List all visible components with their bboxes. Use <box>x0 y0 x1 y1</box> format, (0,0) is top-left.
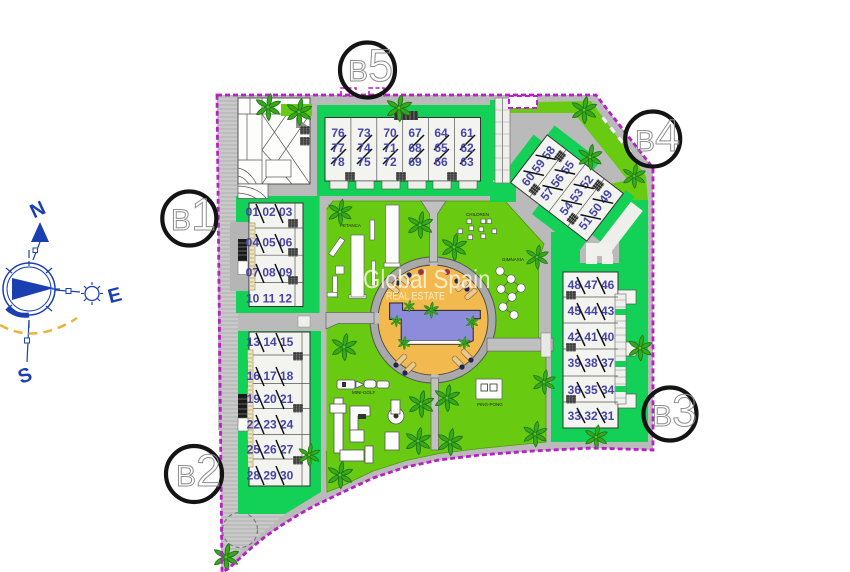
svg-text:76: 76 <box>331 126 345 140</box>
svg-text:63: 63 <box>460 155 474 169</box>
svg-text:62: 62 <box>460 141 474 155</box>
svg-text:61: 61 <box>460 126 474 140</box>
svg-text:74: 74 <box>357 141 371 155</box>
svg-text:S: S <box>15 363 35 388</box>
svg-text:48 47 46: 48 47 46 <box>568 278 615 292</box>
svg-text:28 29 30: 28 29 30 <box>247 469 294 483</box>
svg-text:B1: B1 <box>171 189 216 240</box>
svg-text:07 08 09: 07 08 09 <box>246 265 293 279</box>
svg-text:66: 66 <box>434 155 448 169</box>
svg-text:39 38 37: 39 38 37 <box>568 356 615 370</box>
svg-text:73: 73 <box>357 126 371 140</box>
svg-text:25 26 27: 25 26 27 <box>247 443 294 457</box>
svg-text:B3: B3 <box>652 385 697 436</box>
svg-text:33 32 31: 33 32 31 <box>568 409 615 423</box>
svg-text:72: 72 <box>383 155 397 169</box>
svg-text:77: 77 <box>331 141 345 155</box>
svg-text:MINI-GOLF: MINI-GOLF <box>352 390 376 395</box>
svg-text:B2: B2 <box>176 445 221 496</box>
svg-text:42 41 40: 42 41 40 <box>568 330 615 344</box>
svg-text:PETANCA: PETANCA <box>340 223 361 228</box>
svg-text:22 23 24: 22 23 24 <box>247 418 294 432</box>
svg-text:78: 78 <box>331 155 345 169</box>
svg-text:16 17 18: 16 17 18 <box>247 369 294 383</box>
svg-text:71: 71 <box>383 141 397 155</box>
svg-text:45 44 43: 45 44 43 <box>568 304 615 318</box>
svg-text:70: 70 <box>383 126 397 140</box>
svg-text:68: 68 <box>408 141 422 155</box>
svg-text:10 11 12: 10 11 12 <box>246 291 292 305</box>
svg-text:01 02 03: 01 02 03 <box>246 205 293 219</box>
svg-text:75: 75 <box>357 155 371 169</box>
svg-text:REAL ESTATE: REAL ESTATE <box>386 291 445 303</box>
svg-text:65: 65 <box>434 141 448 155</box>
svg-text:19 20 21: 19 20 21 <box>247 392 294 406</box>
svg-text:04 05 06: 04 05 06 <box>246 236 293 250</box>
svg-text:64: 64 <box>434 126 448 140</box>
svg-text:N: N <box>27 197 49 223</box>
svg-text:Global Spain: Global Spain <box>363 264 491 294</box>
svg-text:E: E <box>106 283 125 308</box>
svg-text:B4: B4 <box>635 110 680 161</box>
svg-text:36 35 34: 36 35 34 <box>568 383 615 397</box>
svg-text:69: 69 <box>408 155 422 169</box>
svg-text:PING-PONG: PING-PONG <box>477 402 503 407</box>
svg-text:CHILDREN: CHILDREN <box>466 212 489 217</box>
svg-text:67: 67 <box>408 126 422 140</box>
svg-text:GIMNASIA: GIMNASIA <box>502 257 524 262</box>
svg-text:13 14 15: 13 14 15 <box>247 335 294 349</box>
